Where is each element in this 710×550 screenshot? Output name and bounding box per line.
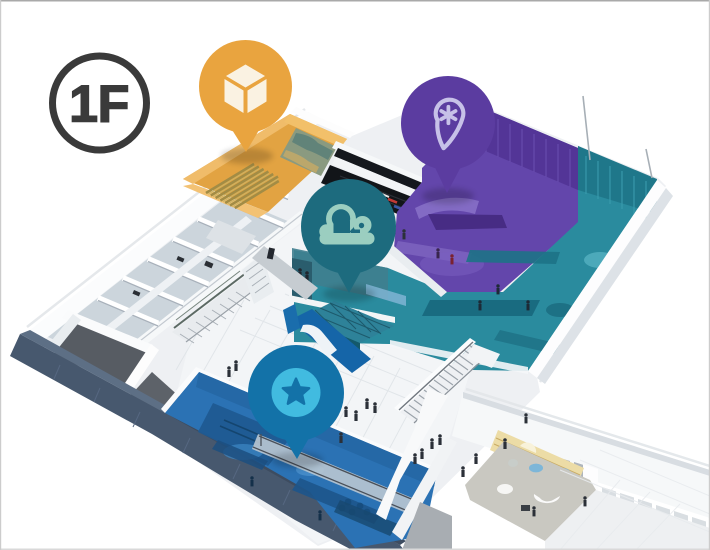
- svg-text:1F: 1F: [69, 76, 129, 134]
